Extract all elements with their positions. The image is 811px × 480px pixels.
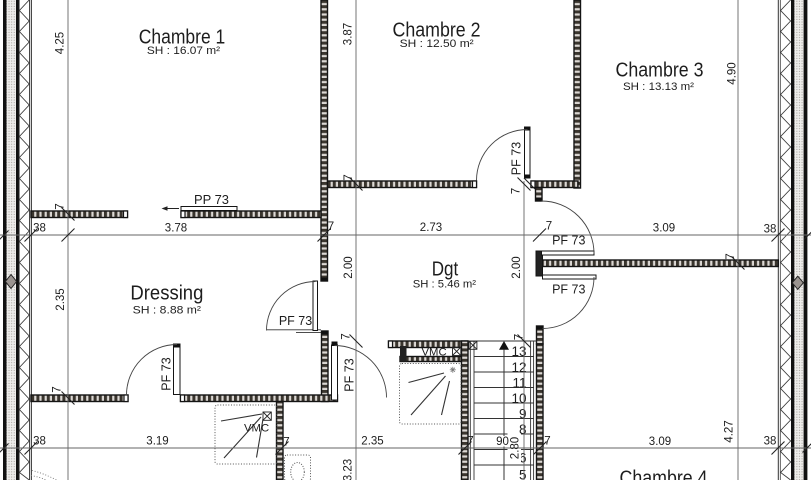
svg-text:SH : 16.07 m²: SH : 16.07 m² xyxy=(147,45,221,57)
svg-text:SH : 13.13 m²: SH : 13.13 m² xyxy=(623,81,694,93)
svg-text:38: 38 xyxy=(33,436,46,448)
svg-text:SH : 12.50 m²: SH : 12.50 m² xyxy=(400,38,474,50)
svg-text:9: 9 xyxy=(519,407,527,422)
svg-text:Chambre 4: Chambre 4 xyxy=(620,468,708,480)
svg-text:7: 7 xyxy=(511,188,523,194)
svg-text:2.00: 2.00 xyxy=(343,256,355,278)
svg-text:7: 7 xyxy=(343,174,355,180)
svg-text:SH : 8.88 m²: SH : 8.88 m² xyxy=(133,305,202,317)
svg-text:PF 73: PF 73 xyxy=(279,314,312,328)
svg-text:7: 7 xyxy=(467,436,473,448)
svg-text:4.27: 4.27 xyxy=(724,420,736,442)
svg-text:3.78: 3.78 xyxy=(165,223,187,235)
svg-text:VMC: VMC xyxy=(244,423,269,435)
svg-text:PF 73: PF 73 xyxy=(343,358,357,391)
svg-text:Dgt: Dgt xyxy=(432,259,459,281)
svg-text:2.35: 2.35 xyxy=(55,288,67,310)
svg-text:7: 7 xyxy=(514,334,526,340)
svg-text:4.90: 4.90 xyxy=(727,62,739,84)
svg-text:3.23: 3.23 xyxy=(343,459,355,480)
svg-text:7: 7 xyxy=(544,436,550,448)
svg-text:VMC: VMC xyxy=(422,347,447,359)
svg-text:7: 7 xyxy=(546,221,552,233)
svg-text:3.19: 3.19 xyxy=(146,436,168,448)
svg-text:3.09: 3.09 xyxy=(653,223,675,235)
svg-text:38: 38 xyxy=(764,224,777,236)
svg-text:7: 7 xyxy=(52,386,64,392)
svg-text:2.73: 2.73 xyxy=(420,222,442,234)
svg-text:7: 7 xyxy=(55,203,67,209)
svg-text:SH : 5.46 m²: SH : 5.46 m² xyxy=(413,279,477,291)
svg-text:Chambre 3: Chambre 3 xyxy=(616,60,704,82)
svg-text:3.09: 3.09 xyxy=(649,436,671,448)
svg-text:PF 73: PF 73 xyxy=(552,283,585,297)
svg-text:7: 7 xyxy=(328,221,334,233)
svg-text:90: 90 xyxy=(496,436,509,448)
svg-text:2.35: 2.35 xyxy=(361,436,383,448)
svg-text:PF 73: PF 73 xyxy=(160,357,174,390)
svg-text:2.00: 2.00 xyxy=(511,256,523,278)
svg-text:Dressing: Dressing xyxy=(130,283,203,305)
svg-text:PP 73: PP 73 xyxy=(194,193,229,207)
svg-text:7: 7 xyxy=(341,333,353,339)
svg-text:PF 73: PF 73 xyxy=(552,234,585,248)
svg-text:38: 38 xyxy=(764,436,777,448)
svg-text:7: 7 xyxy=(283,437,289,449)
svg-text:4.25: 4.25 xyxy=(55,32,67,54)
svg-text:7: 7 xyxy=(725,253,737,259)
svg-text:PF 73: PF 73 xyxy=(510,142,524,175)
svg-text:3.87: 3.87 xyxy=(343,23,355,45)
svg-text:5: 5 xyxy=(519,468,527,480)
svg-text:2.80: 2.80 xyxy=(510,437,522,459)
svg-text:38: 38 xyxy=(33,223,46,235)
